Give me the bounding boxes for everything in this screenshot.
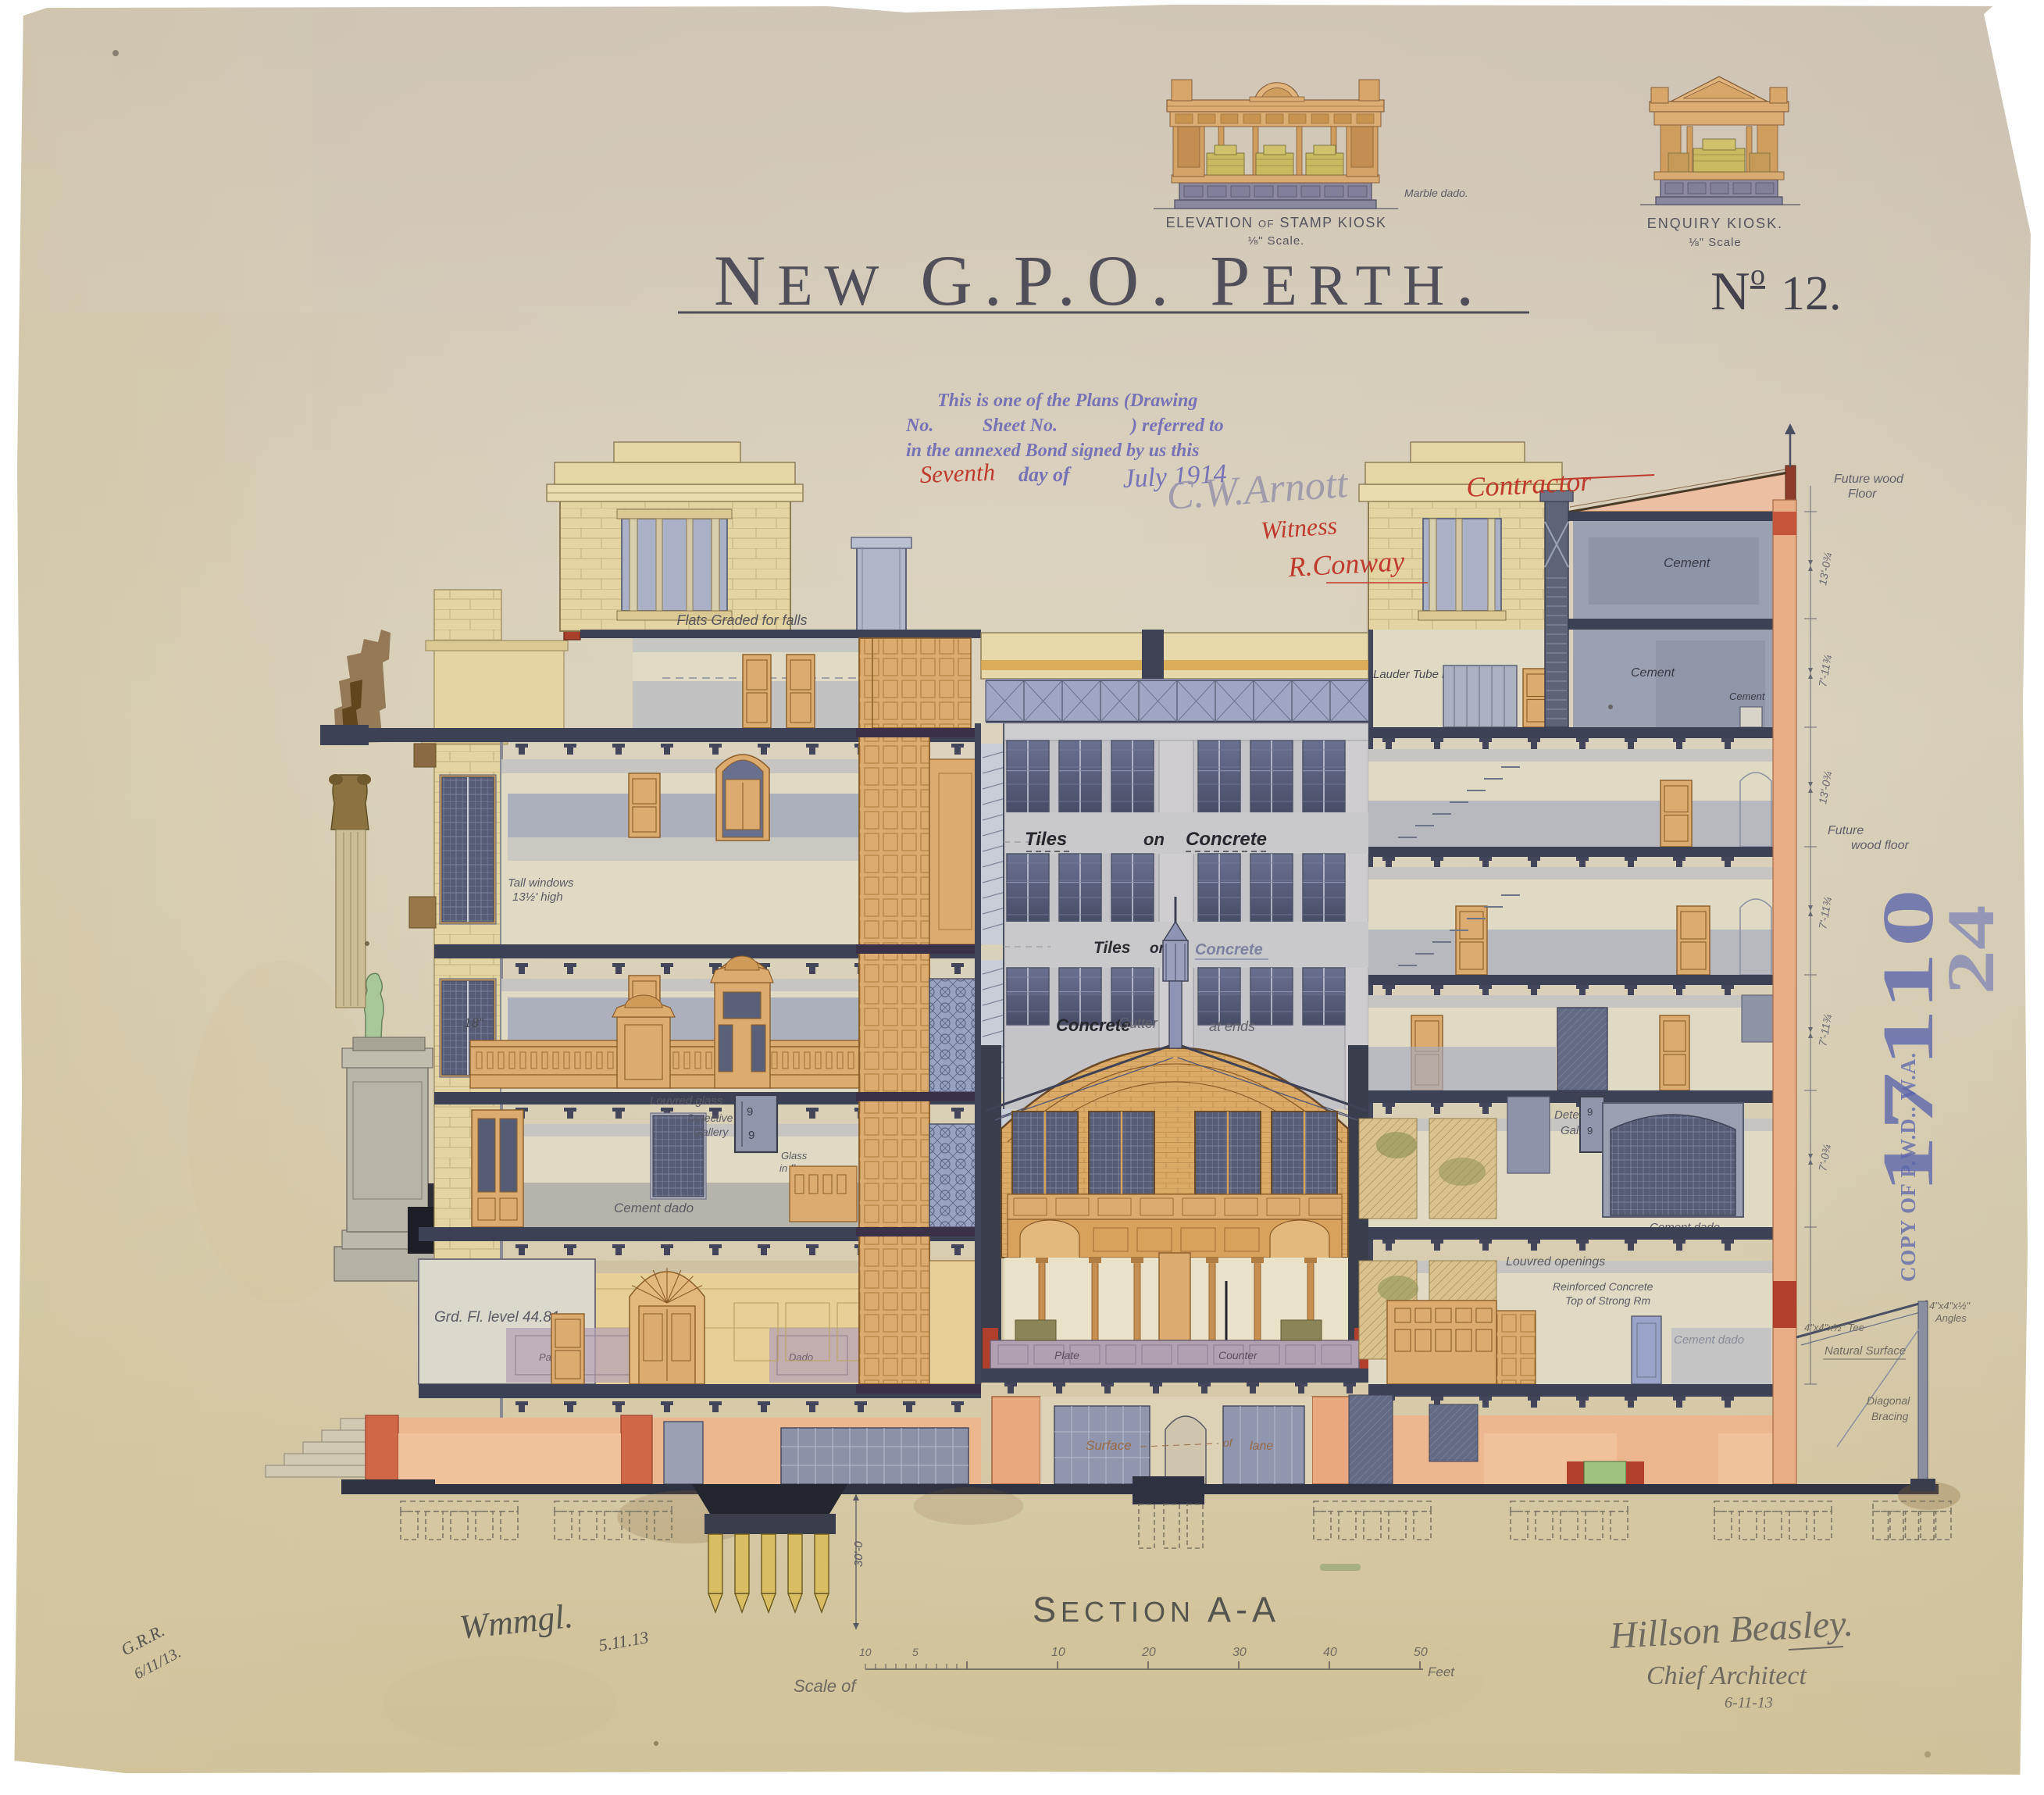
svg-text:day of: day of xyxy=(1018,463,1072,486)
svg-text:5: 5 xyxy=(912,1646,919,1658)
svg-text:Counter: Counter xyxy=(1218,1349,1258,1361)
svg-text:24: 24 xyxy=(1933,905,2008,995)
svg-text:Marble dado.: Marble dado. xyxy=(1404,187,1468,199)
svg-text:6-11-13: 6-11-13 xyxy=(1725,1694,1773,1711)
svg-text:Gallery: Gallery xyxy=(694,1126,729,1138)
svg-text:Feet: Feet xyxy=(1428,1665,1455,1679)
svg-text:Cement: Cement xyxy=(1664,555,1711,570)
svg-text:4"x4"x½": 4"x4"x½" xyxy=(1929,1300,1971,1311)
svg-text:Louvred openings: Louvred openings xyxy=(1506,1255,1605,1269)
svg-text:Floor: Floor xyxy=(1848,487,1877,501)
svg-text:on: on xyxy=(1143,830,1165,849)
svg-text:Detective: Detective xyxy=(687,1112,733,1124)
svg-text:Future: Future xyxy=(1828,824,1864,837)
svg-text:ENQUIRY KIOSK.: ENQUIRY KIOSK. xyxy=(1647,216,1783,231)
svg-text:Cement: Cement xyxy=(1631,666,1675,680)
svg-text:9: 9 xyxy=(748,1129,754,1142)
svg-text:Scale of: Scale of xyxy=(794,1676,858,1696)
svg-text:Plate: Plate xyxy=(1054,1349,1079,1361)
svg-text:Flats Graded for falls: Flats Graded for falls xyxy=(676,612,807,628)
svg-text:No.: No. xyxy=(905,416,933,436)
svg-text:Reinforced Concrete: Reinforced Concrete xyxy=(1553,1280,1653,1293)
svg-text:9: 9 xyxy=(1587,1106,1593,1118)
svg-text:This is one of the Plans (Draw: This is one of the Plans (Drawing xyxy=(937,391,1197,411)
svg-text:Angles: Angles xyxy=(1935,1312,1967,1324)
svg-text:Glass: Glass xyxy=(781,1150,808,1162)
svg-text:lane: lane xyxy=(1250,1440,1273,1453)
svg-text:Tiles: Tiles xyxy=(1093,939,1130,957)
svg-text:o: o xyxy=(1750,259,1765,291)
svg-text:N: N xyxy=(1710,262,1750,322)
svg-text:Future wood: Future wood xyxy=(1834,473,1904,486)
svg-text:at ends: at ends xyxy=(1209,1019,1255,1034)
svg-text:in the annexed Bond signed by: in the annexed Bond signed by us this xyxy=(906,441,1199,461)
svg-text:Cement: Cement xyxy=(1729,691,1766,702)
svg-text:9: 9 xyxy=(1587,1125,1593,1137)
svg-text:40: 40 xyxy=(1323,1646,1337,1659)
svg-text:Louvred glass: Louvred glass xyxy=(650,1094,723,1108)
svg-text:wood floor: wood floor xyxy=(1851,839,1909,852)
svg-text:30: 30 xyxy=(1232,1646,1247,1659)
svg-text:R.Conway: R.Conway xyxy=(1286,545,1405,583)
svg-text:12.: 12. xyxy=(1781,267,1842,320)
svg-text:ELEVATION OF STAMP KIOSK: ELEVATION OF STAMP KIOSK xyxy=(1166,215,1387,230)
svg-text:Seventh: Seventh xyxy=(919,459,996,488)
svg-text:⅛" Scale: ⅛" Scale xyxy=(1689,236,1742,249)
svg-text:10: 10 xyxy=(859,1646,872,1658)
svg-text:Contractor: Contractor xyxy=(1465,466,1593,503)
svg-text:Natural Surface: Natural Surface xyxy=(1825,1344,1906,1358)
svg-text:Concrete: Concrete xyxy=(1195,941,1263,958)
svg-text:SECTION A-A: SECTION A-A xyxy=(1033,1590,1280,1629)
svg-text:Bracing: Bracing xyxy=(1871,1410,1909,1422)
svg-text:Grd. Fl. level 44.81: Grd. Fl. level 44.81 xyxy=(434,1309,560,1326)
svg-text:Diagonal: Diagonal xyxy=(1867,1394,1910,1407)
svg-text:9: 9 xyxy=(747,1105,753,1119)
svg-text:Top of Strong Rm: Top of Strong Rm xyxy=(1565,1294,1651,1307)
svg-text:Gutter: Gutter xyxy=(1118,1015,1158,1031)
svg-text:Tall windows: Tall windows xyxy=(508,876,574,890)
svg-text:Tiles: Tiles xyxy=(1025,829,1067,850)
svg-text:18": 18" xyxy=(464,1015,484,1030)
svg-text:COPY OF P.W.D.. W.A.: COPY OF P.W.D.. W.A. xyxy=(1896,1052,1920,1282)
svg-text:Cement dado: Cement dado xyxy=(614,1201,694,1215)
svg-text:Surface: Surface xyxy=(1086,1438,1132,1453)
svg-text:20: 20 xyxy=(1141,1646,1156,1659)
svg-text:) referred to: ) referred to xyxy=(1129,416,1224,436)
svg-text:Concrete: Concrete xyxy=(1186,829,1267,850)
svg-text:50: 50 xyxy=(1414,1646,1428,1659)
svg-text:Dado: Dado xyxy=(789,1351,813,1363)
svg-text:13½' high: 13½' high xyxy=(512,890,563,904)
svg-text:10: 10 xyxy=(1051,1646,1065,1659)
svg-text:Chief Architect: Chief Architect xyxy=(1646,1661,1807,1690)
svg-text:30'-0: 30'-0 xyxy=(852,1540,865,1567)
svg-text:⅛" Scale.: ⅛" Scale. xyxy=(1248,234,1305,248)
svg-text:4"x4"x½" Tee: 4"x4"x½" Tee xyxy=(1804,1322,1864,1333)
svg-text:Sheet No.: Sheet No. xyxy=(983,416,1058,436)
svg-text:Witness: Witness xyxy=(1260,511,1338,544)
